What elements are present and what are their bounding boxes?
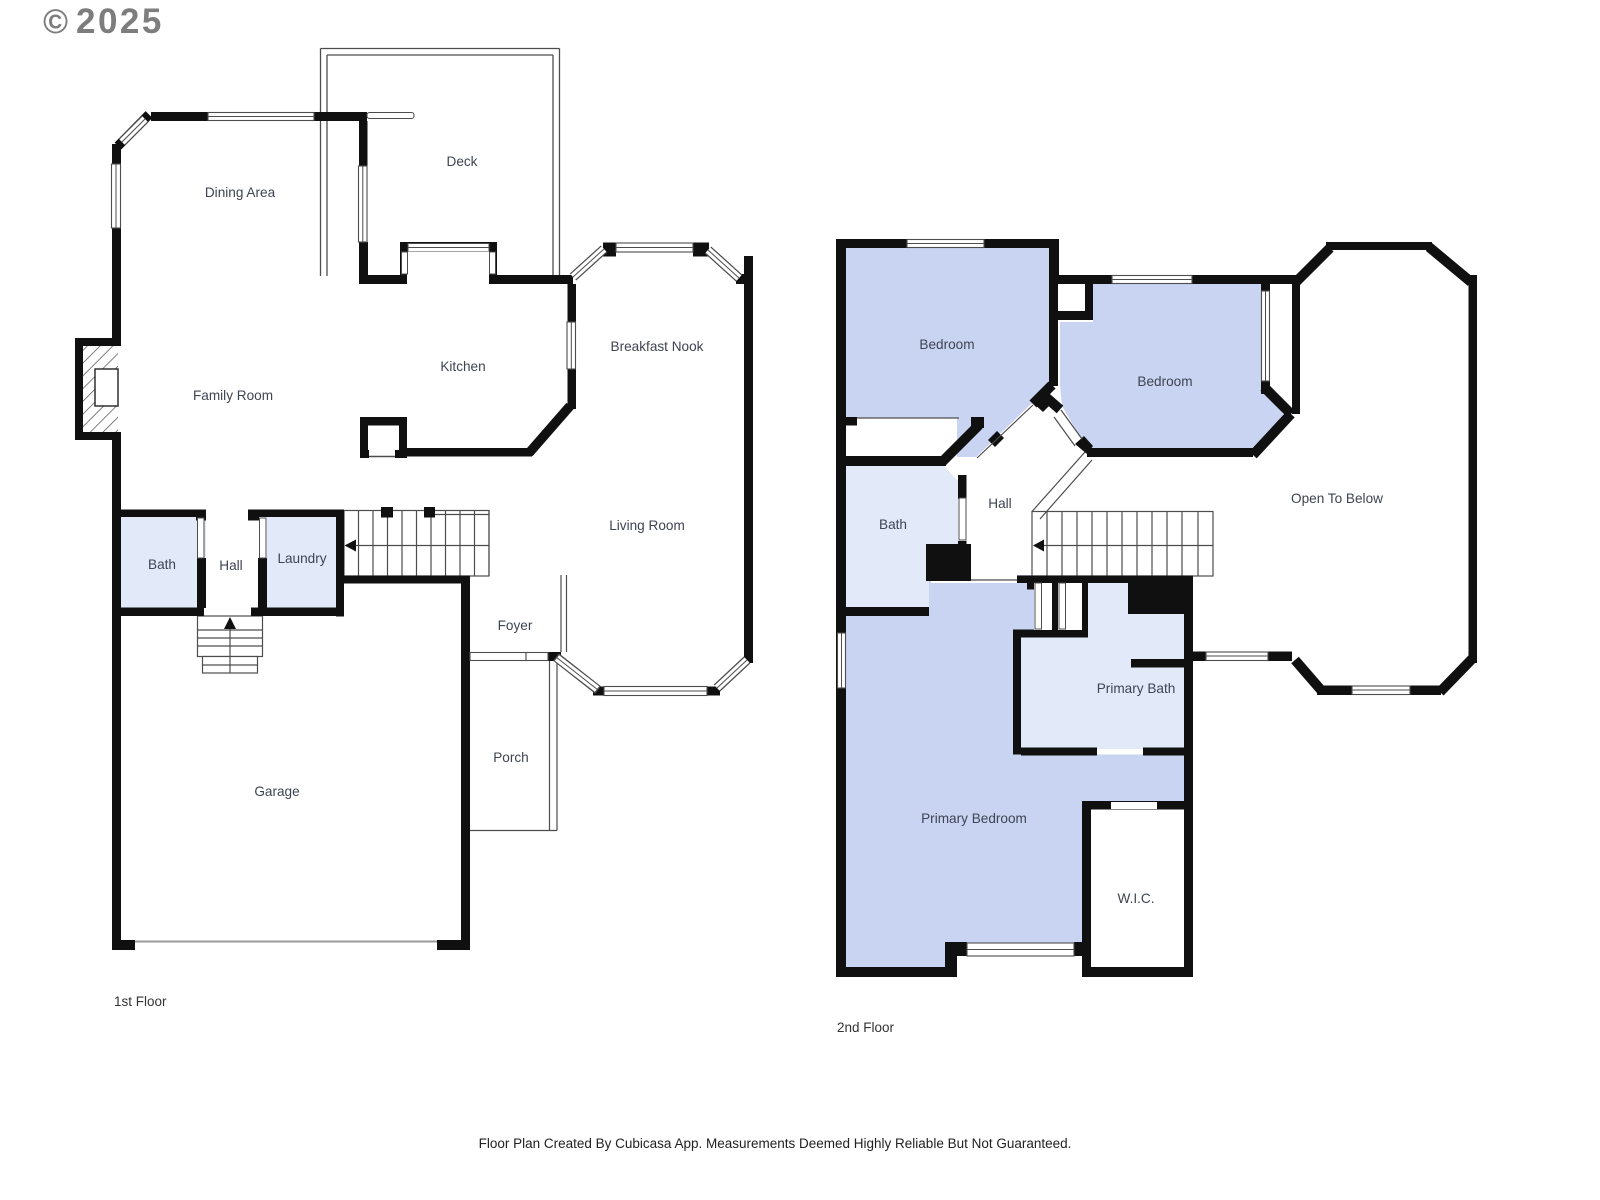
svg-text:Open To Below: Open To Below [1291,491,1383,506]
svg-text:Kitchen: Kitchen [440,359,485,374]
svg-text:Living Room: Living Room [609,518,685,533]
svg-text:Bath: Bath [148,557,176,572]
svg-text:Garage: Garage [254,784,299,799]
svg-text:Family Room: Family Room [193,388,273,403]
svg-text:Hall: Hall [988,496,1011,511]
svg-text:©: © [43,3,68,41]
svg-text:Bedroom: Bedroom [919,337,974,352]
svg-text:Laundry: Laundry [277,551,326,566]
svg-text:2nd Floor: 2nd Floor [837,1020,895,1035]
svg-text:1st Floor: 1st Floor [114,994,167,1009]
svg-text:W.I.C.: W.I.C. [1117,891,1154,906]
svg-text:Primary Bedroom: Primary Bedroom [921,811,1027,826]
svg-text:Primary Bath: Primary Bath [1097,681,1176,696]
svg-text:Bath: Bath [879,517,907,532]
svg-text:Hall: Hall [219,558,242,573]
svg-text:Dining Area: Dining Area [205,185,276,200]
svg-text:Deck: Deck [447,154,478,169]
svg-text:2025: 2025 [76,2,164,41]
svg-text:Breakfast Nook: Breakfast Nook [611,339,704,354]
svg-text:Foyer: Foyer [498,618,533,633]
svg-text:Bedroom: Bedroom [1137,374,1192,389]
svg-text:Floor Plan Created By Cubicasa: Floor Plan Created By Cubicasa App. Meas… [479,1136,1072,1151]
svg-text:Porch: Porch [493,750,529,765]
